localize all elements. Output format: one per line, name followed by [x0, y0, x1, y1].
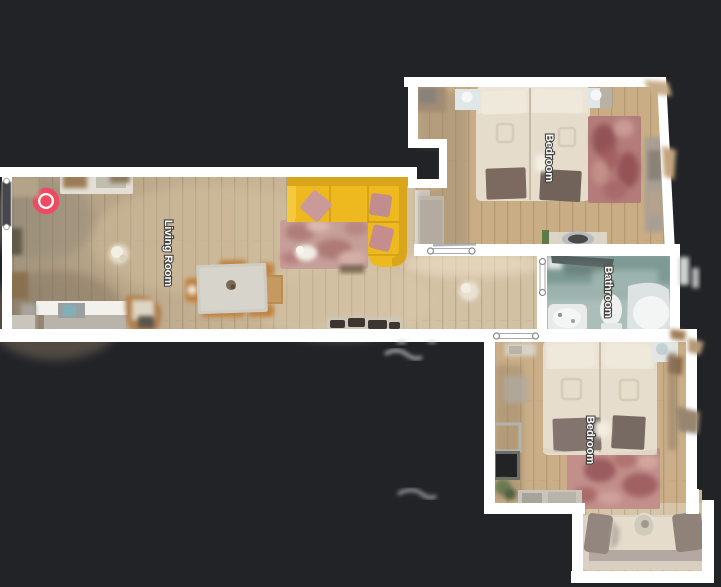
svg-text:Living Room: Living Room [162, 220, 174, 287]
svg-text:Bedroom: Bedroom [584, 416, 596, 465]
svg-text:Bedroom: Bedroom [543, 134, 555, 183]
svg-text:Bathroom: Bathroom [602, 266, 614, 318]
